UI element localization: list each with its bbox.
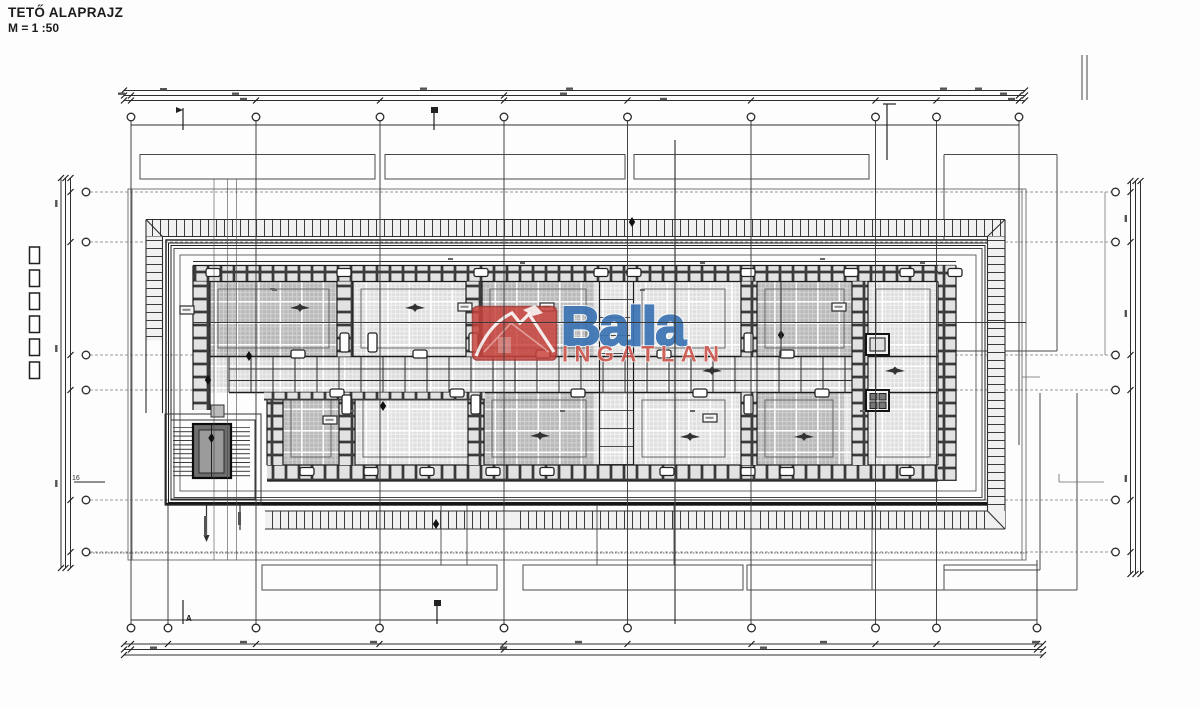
svg-text:TETŐ ALAPRAJZ: TETŐ ALAPRAJZ — [8, 5, 123, 20]
svg-text:A: A — [186, 614, 192, 623]
svg-text:INGATLAN: INGATLAN — [562, 342, 723, 367]
svg-text:16: 16 — [72, 475, 80, 482]
svg-text:M = 1 :50: M = 1 :50 — [8, 21, 59, 35]
